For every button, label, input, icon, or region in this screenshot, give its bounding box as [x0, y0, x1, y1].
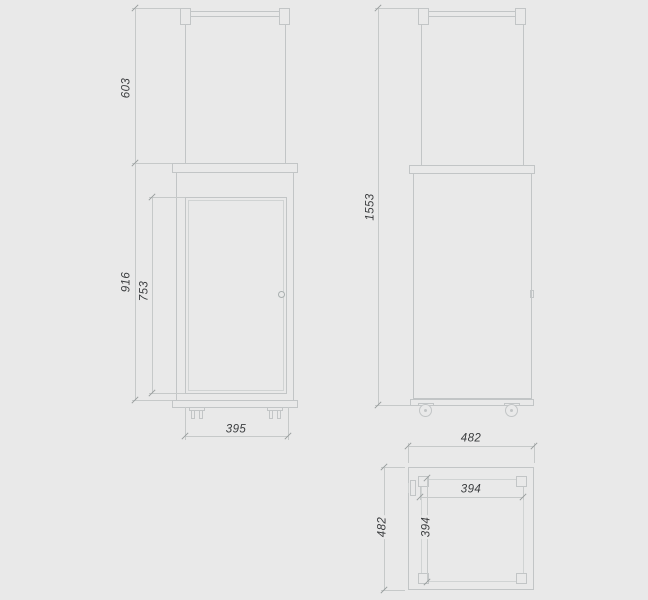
side-caster-right-axle [510, 409, 513, 412]
top-post-tr [516, 476, 527, 487]
dim-line-916 [135, 163, 136, 400]
front-door-inner-edge [188, 200, 284, 391]
front-post-left [180, 8, 191, 25]
front-post-right [279, 8, 290, 25]
ext-line-1553-bottom [375, 405, 410, 406]
dim-line-482-top [408, 446, 534, 447]
front-caster-right-fork2 [277, 410, 281, 419]
ext-line-door-bottom [149, 393, 185, 394]
side-hinge-nub [530, 290, 534, 298]
dim-line-395 [185, 436, 288, 437]
dim-394-horizontal-label: 394 [461, 484, 481, 496]
front-caster-left-fork [191, 410, 195, 419]
dim-line-1553 [378, 8, 379, 405]
dim-395-label: 395 [226, 424, 246, 436]
side-post-left [418, 8, 429, 25]
side-body [413, 173, 532, 399]
side-glass-edge-left [421, 25, 422, 165]
ext-line-top [132, 8, 180, 9]
top-door-handle [410, 480, 416, 496]
ext-line-cap [132, 163, 172, 164]
ext-line-1553-top [375, 8, 418, 9]
ext-line-482left-bottom [381, 590, 405, 591]
front-glass-edge-right [285, 25, 286, 163]
front-caster-left-fork2 [199, 410, 203, 419]
top-post-br [516, 573, 527, 584]
ext-line-bottom [132, 400, 172, 401]
side-top-bar [428, 11, 516, 17]
dim-394-vertical-label: 394 [421, 515, 433, 539]
front-caster-right-fork [269, 410, 273, 419]
top-door-handle-edge [408, 483, 409, 493]
side-post-right [515, 8, 526, 25]
dim-916-label: 916 [121, 272, 133, 292]
dim-482-top-label: 482 [461, 433, 481, 445]
side-caster-left-axle [424, 409, 427, 412]
front-door-handle [278, 291, 285, 298]
dim-line-603 [135, 8, 136, 163]
dim-1553-label: 1553 [365, 193, 377, 220]
front-glass-edge-left [185, 25, 186, 163]
ext-line-door-top [149, 197, 185, 198]
technical-drawing: 603 916 753 395 1553 [0, 0, 648, 600]
dim-line-394-horizontal [420, 497, 523, 498]
dim-482-left-label: 482 [377, 515, 389, 539]
side-glass-edge-right [523, 25, 524, 165]
dim-753-label: 753 [139, 281, 151, 301]
front-top-bar [190, 11, 280, 17]
dim-603-label: 603 [121, 78, 133, 98]
dim-line-753 [152, 197, 153, 393]
